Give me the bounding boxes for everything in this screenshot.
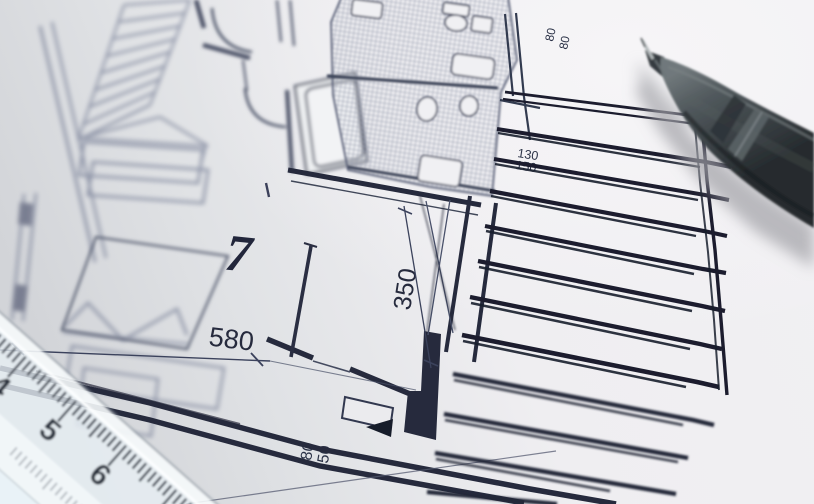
svg-text:580: 580 <box>207 322 255 357</box>
